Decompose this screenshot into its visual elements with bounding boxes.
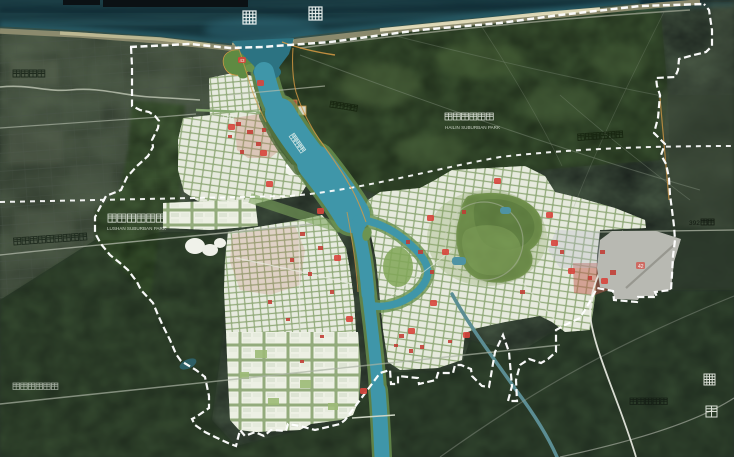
svg-text:HAILIN SUBURBAN PARK: HAILIN SUBURBAN PARK — [445, 125, 501, 130]
svg-text:LUSHAN SUBURBAN PARK: LUSHAN SUBURBAN PARK — [107, 226, 167, 231]
svg-text:42: 42 — [638, 264, 644, 270]
svg-text:CBD: CBD — [223, 115, 234, 121]
svg-text:43: 43 — [240, 58, 246, 63]
svg-text:392: 392 — [689, 220, 700, 227]
